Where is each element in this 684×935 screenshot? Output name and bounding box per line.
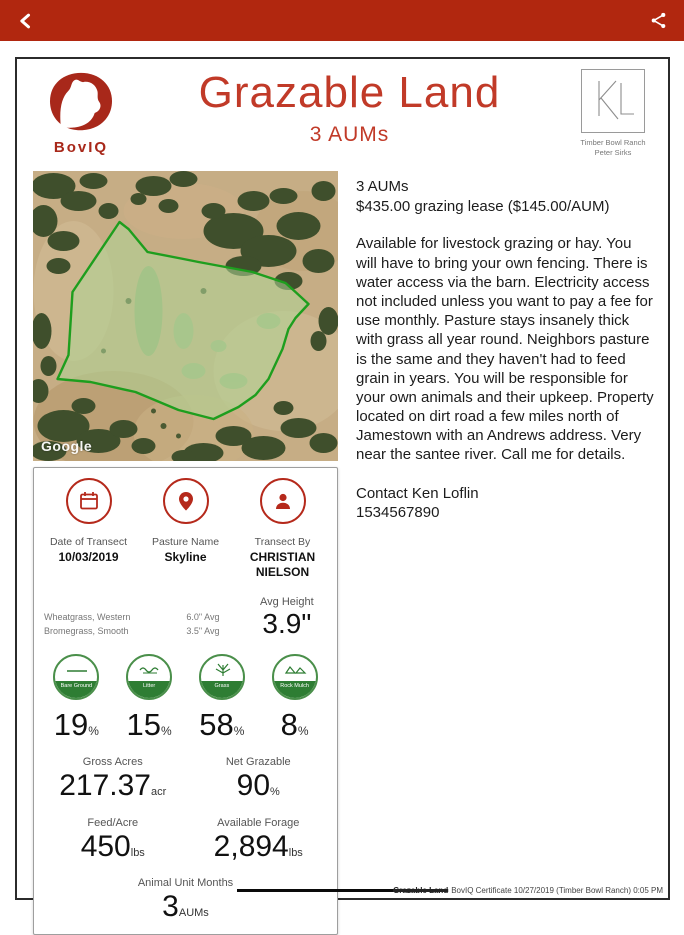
forage-row: Feed/Acre 450lbs Available Forage 2,894l… <box>40 817 331 862</box>
boviq-logo-icon <box>48 71 114 138</box>
pasture-name-cell: Pasture Name Skyline <box>137 478 234 580</box>
rock-mulch-icon: Rock Mulch <box>272 654 318 700</box>
grass-species-2: Bromegrass, Smooth <box>44 625 163 639</box>
rock-mulch-icon-label: Rock Mulch <box>274 681 316 698</box>
listing-details: 3 AUMs $435.00 grazing lease ($145.00/AU… <box>356 171 655 935</box>
coverage-litter: Litter 15% <box>113 654 186 740</box>
available-forage-label: Available Forage <box>186 817 332 829</box>
net-grazable-value: 90% <box>186 771 332 801</box>
bare-ground-icon-label: Bare Ground <box>55 681 97 698</box>
acres-row: Gross Acres 217.37acr Net Grazable 90% <box>40 756 331 801</box>
transect-stats-card: Date of Transect 10/03/2019 Pasture Name… <box>33 467 338 935</box>
available-forage-stat: Available Forage 2,894lbs <box>186 817 332 862</box>
contact-phone: 1534567890 <box>356 503 655 522</box>
feed-acre-label: Feed/Acre <box>40 817 186 829</box>
contact-name: Contact Ken Loflin <box>356 484 655 503</box>
pasture-name-value: Skyline <box>164 550 206 565</box>
rock-mulch-percent: 8% <box>281 709 309 740</box>
avg-height-value: 3.9" <box>243 610 331 638</box>
certificate-footer: Grazable Land BovIQ Certificate 10/27/20… <box>237 886 663 895</box>
title-block: Grazable Land 3 AUMs <box>129 67 570 171</box>
gross-acres-stat: Gross Acres 217.37acr <box>40 756 186 801</box>
transect-by-value: CHRISTIAN NIELSON <box>237 550 329 580</box>
grass-avg-list: 6.0" Avg 3.5" Avg <box>163 611 242 638</box>
grass-percent: 58% <box>199 709 244 740</box>
grass-icon: Grass <box>199 654 245 700</box>
transect-by-label: Transect By <box>255 536 311 548</box>
calendar-icon <box>66 478 112 524</box>
satellite-image <box>33 171 338 461</box>
aum-value: 3AUMs <box>40 892 331 922</box>
gross-acres-label: Gross Acres <box>40 756 186 768</box>
feed-acre-value: 450lbs <box>40 832 186 862</box>
google-watermark: Google <box>41 438 92 454</box>
transect-meta-row: Date of Transect 10/03/2019 Pasture Name… <box>40 478 331 580</box>
grass-row: Wheatgrass, Western Bromegrass, Smooth 6… <box>40 596 331 638</box>
share-icon <box>649 11 668 30</box>
avg-height-label: Avg Height <box>243 596 331 608</box>
coverage-rock-mulch: Rock Mulch 8% <box>258 654 331 740</box>
boviq-brand: BovIQ <box>33 67 129 171</box>
date-of-transect-value: 10/03/2019 <box>58 550 118 565</box>
net-grazable-label: Net Grazable <box>186 756 332 768</box>
page-subtitle: 3 AUMs <box>129 123 570 147</box>
bare-ground-icon: Bare Ground <box>53 654 99 700</box>
footer-certificate-text: BovIQ Certificate 10/27/2019 (Timber Bow… <box>451 886 663 895</box>
coverage-grass: Grass 58% <box>186 654 259 740</box>
bare-ground-percent: 19% <box>54 709 99 740</box>
grass-avg-2: 3.5" Avg <box>163 625 242 639</box>
litter-icon-label: Litter <box>128 681 170 698</box>
certificate-body: Google Date <box>17 171 668 935</box>
share-button[interactable] <box>644 7 672 35</box>
map-pin-icon <box>163 478 209 524</box>
back-chevron-icon <box>16 11 36 31</box>
transect-by-cell: Transect By CHRISTIAN NIELSON <box>234 478 331 580</box>
listing-aums: 3 AUMs <box>356 177 655 196</box>
ranch-owner: Peter Sirks <box>595 148 632 158</box>
certificate-header: BovIQ Grazable Land 3 AUMs Timber Bowl R… <box>17 59 668 171</box>
feed-acre-stat: Feed/Acre 450lbs <box>40 817 186 862</box>
transect-date-cell: Date of Transect 10/03/2019 <box>40 478 137 580</box>
listing-price: $435.00 grazing lease ($145.00/AUM) <box>356 197 655 216</box>
listing-description: Available for livestock grazing or hay. … <box>356 234 655 464</box>
litter-icon: Litter <box>126 654 172 700</box>
litter-percent: 15% <box>127 709 172 740</box>
pasture-name-label: Pasture Name <box>152 536 219 548</box>
gross-acres-value: 217.37acr <box>40 771 186 801</box>
coverage-bare-ground: Bare Ground 19% <box>40 654 113 740</box>
left-column: Google Date <box>33 171 338 935</box>
person-icon <box>260 478 306 524</box>
coverage-row: Bare Ground 19% Litter 15% <box>40 654 331 740</box>
boviq-wordmark: BovIQ <box>54 139 108 156</box>
grass-species-1: Wheatgrass, Western <box>44 611 163 625</box>
available-forage-value: 2,894lbs <box>186 832 332 862</box>
grass-species-list: Wheatgrass, Western Bromegrass, Smooth <box>40 611 163 638</box>
grass-avg-1: 6.0" Avg <box>163 611 242 625</box>
ranch-name: Timber Bowl Ranch <box>580 138 645 148</box>
ranch-block: Timber Bowl Ranch Peter Sirks <box>570 67 656 171</box>
grass-icon-label: Grass <box>201 681 243 698</box>
footer-strike-bar <box>237 889 395 892</box>
avg-height-block: Avg Height 3.9" <box>243 596 331 638</box>
aum-stat: Animal Unit Months 3AUMs <box>40 877 331 926</box>
certificate-page: BovIQ Grazable Land 3 AUMs Timber Bowl R… <box>15 57 670 900</box>
net-grazable-stat: Net Grazable 90% <box>186 756 332 801</box>
pasture-map: Google <box>33 171 338 461</box>
date-of-transect-label: Date of Transect <box>50 536 127 548</box>
ranch-logo <box>581 69 645 133</box>
back-button[interactable] <box>12 7 40 35</box>
top-app-bar <box>0 0 684 41</box>
footer-struck-title: Grazable Land <box>393 886 448 895</box>
page-title: Grazable Land <box>129 69 570 117</box>
